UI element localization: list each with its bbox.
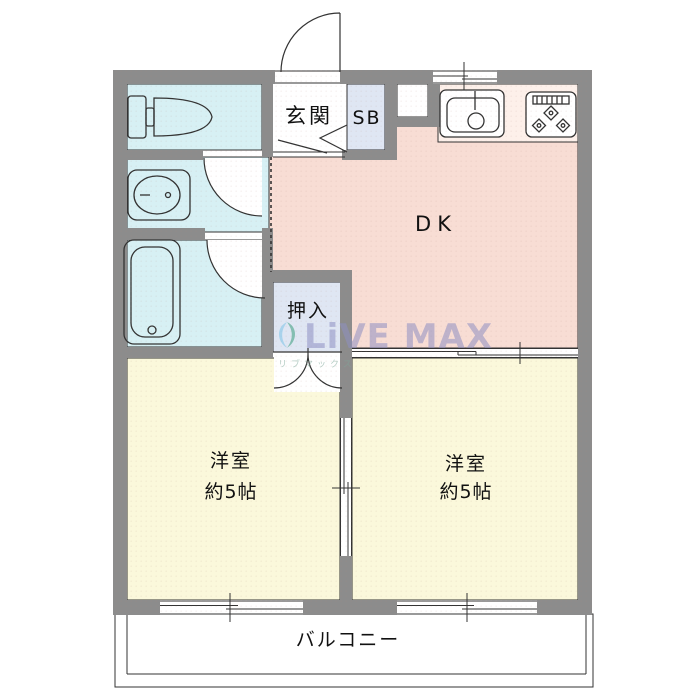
shoe-box-label: SB (352, 107, 381, 130)
bedroom-left-label: 洋室 (210, 450, 252, 473)
bedroom-left-size: 約5帖 (204, 481, 257, 504)
floorplan-image: 玄関 SB DK 押入 洋室 約5帖 洋室 約5帖 バルコニー LiVE MAX… (0, 0, 700, 700)
entrance-door-arc (281, 13, 340, 72)
bedroom-right-label: 洋室 (445, 453, 487, 476)
dk-label: DK (415, 212, 457, 237)
dot-texture-overlay (113, 70, 592, 615)
entrance-label: 玄関 (285, 104, 333, 129)
closet-label: 押入 (287, 300, 329, 323)
floorplan-canvas (0, 0, 700, 700)
balcony-label: バルコニー (296, 629, 401, 652)
bedroom-right-size: 約5帖 (439, 481, 492, 504)
